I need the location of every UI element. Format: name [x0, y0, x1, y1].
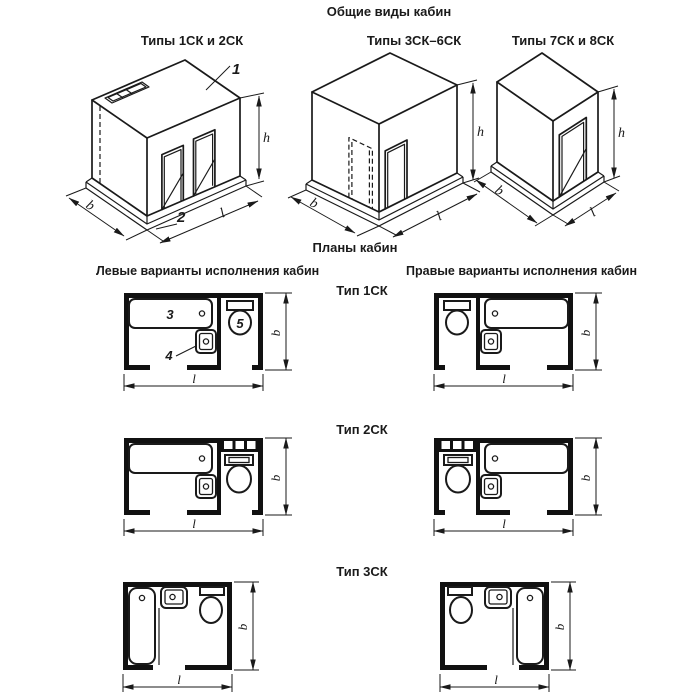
callout-bath: 3 — [166, 307, 174, 322]
iso-title-1: Типы 1СК и 2СК — [92, 33, 292, 48]
dim-length-label: l — [494, 672, 498, 687]
dim-width: b — [234, 582, 259, 670]
dim-length: l — [379, 183, 480, 237]
interior — [434, 438, 573, 515]
washbasin — [481, 330, 501, 353]
toilet-tank — [227, 301, 253, 310]
toilet — [200, 587, 224, 623]
partition-wall — [217, 443, 221, 510]
toilet-bowl — [200, 597, 222, 623]
dim-length: l — [123, 672, 232, 692]
washbasin — [481, 475, 501, 498]
callout-base-number: 2 — [176, 209, 186, 226]
toilet-tank — [200, 587, 224, 595]
dim-width: b — [474, 172, 553, 226]
toilet — [444, 301, 470, 335]
dim-height: h — [240, 93, 270, 186]
door-opening-front — [385, 140, 407, 209]
interior — [124, 438, 263, 515]
cabin-box — [497, 53, 598, 201]
dim-height-label: h — [263, 131, 270, 146]
column-header-left: Левые варианты исполнения кабин — [96, 264, 296, 278]
iso-view-types-7sk-8sk: h b l — [474, 52, 649, 247]
row-label-3sk: Тип 3СК — [262, 564, 462, 579]
dim-length: l — [434, 371, 573, 391]
vent-block — [219, 438, 263, 452]
interior — [123, 587, 232, 670]
plan-2sk-right: b l — [410, 430, 610, 540]
dim-width: b — [575, 438, 602, 515]
dim-width-label: b — [552, 623, 567, 630]
toilet — [448, 587, 472, 623]
dim-width-label: b — [268, 474, 283, 481]
dim-length-label: l — [502, 516, 506, 531]
toilet — [225, 455, 253, 493]
bathtub — [129, 444, 212, 473]
dim-length: l — [434, 516, 573, 536]
bathtub — [485, 444, 568, 473]
toilet-bowl — [446, 466, 470, 493]
dim-width-label: b — [578, 474, 593, 481]
partition-wall — [217, 298, 221, 365]
washbasin — [485, 587, 511, 608]
dim-width-label: b — [578, 329, 593, 336]
drawing-sheet: Общие виды кабин Типы 1СК и 2СК Типы 3СК… — [0, 0, 700, 700]
interior — [124, 298, 263, 370]
toilet-bowl — [227, 466, 251, 493]
toilet-bowl — [450, 597, 472, 623]
dim-length: l — [553, 182, 619, 226]
toilet-tank — [448, 587, 472, 595]
dim-length: l — [124, 516, 263, 536]
column-header-right: Правые варианты исполнения кабин — [406, 264, 606, 278]
door-opening-front — [559, 118, 586, 197]
dim-length-label: l — [192, 516, 196, 531]
toilet — [444, 455, 472, 493]
door-opening-left — [162, 145, 183, 209]
partition-wall — [476, 298, 480, 365]
callout-roof-number: 1 — [232, 61, 240, 78]
bathtub — [517, 588, 543, 664]
dim-width-label: b — [83, 198, 97, 214]
washbasin — [196, 330, 216, 353]
toilet-bowl — [446, 311, 468, 335]
dim-length: l — [124, 371, 263, 391]
interior — [434, 298, 573, 370]
dim-width: b — [575, 293, 602, 370]
plan-3sk-right: b l — [412, 578, 597, 700]
plan-1sk-left: 3 4 5 b l — [100, 288, 300, 396]
washbasin — [161, 587, 187, 608]
dim-length-label: l — [502, 371, 506, 386]
toilet-tank — [444, 301, 470, 310]
interior — [440, 587, 549, 670]
bathtub — [129, 588, 155, 664]
dim-height-label: h — [618, 126, 625, 141]
washbasin — [196, 475, 216, 498]
iso-title-3: Типы 7СК и 8СК — [463, 33, 663, 48]
sheet-title: Общие виды кабин — [239, 4, 539, 19]
dim-width-label: b — [235, 623, 250, 630]
dim-length-label: l — [218, 206, 228, 221]
dim-width-label: b — [307, 196, 320, 213]
dim-width-label: b — [492, 183, 506, 199]
plan-2sk-left: b l — [100, 430, 300, 540]
callout-sink: 4 — [164, 348, 173, 363]
dim-height: h — [598, 86, 625, 182]
callout-wc: 5 — [236, 316, 244, 331]
dim-width: b — [265, 438, 292, 515]
door-opening-hidden — [349, 138, 373, 209]
dim-width: b — [265, 293, 292, 370]
partition-wall — [476, 443, 480, 510]
vent-block — [434, 438, 478, 452]
dim-width-label: b — [268, 329, 283, 336]
plan-1sk-right: b l — [410, 288, 610, 396]
door-opening-right — [194, 130, 215, 196]
plan-3sk-left: b l — [95, 578, 280, 700]
iso-view-types-1sk-2sk: 1 2 h b l — [58, 52, 278, 252]
dim-length-label: l — [192, 371, 196, 386]
dim-length: l — [440, 672, 549, 692]
dim-length-label: l — [177, 672, 181, 687]
iso-view-types-3sk-6sk: h b l — [286, 52, 486, 247]
dim-width: b — [551, 582, 576, 670]
bathtub — [485, 299, 568, 328]
